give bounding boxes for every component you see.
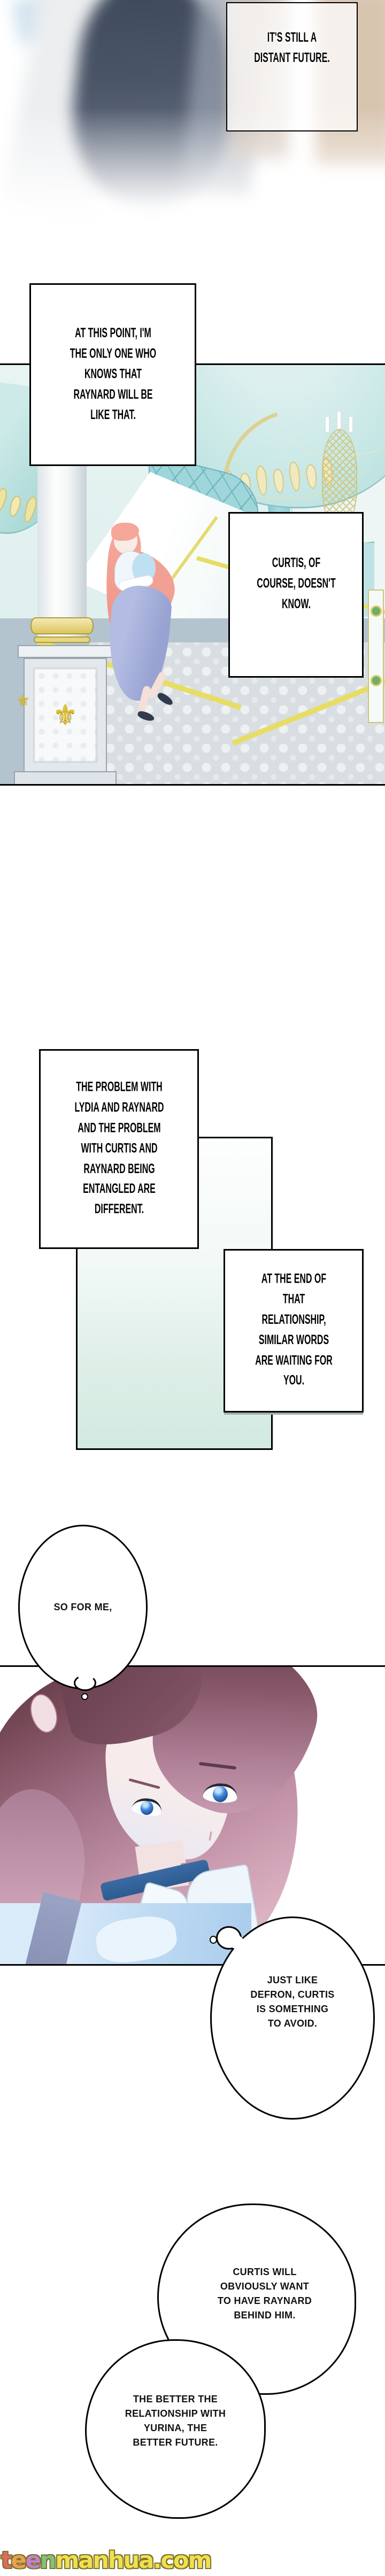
green-gem-medallion <box>371 606 382 617</box>
narration-box-at-the-end: AT THE END OF THAT RELATIONSHIP, SIMILAR… <box>224 1249 364 1413</box>
narration-text: THE PROBLEM WITH LYDIA AND RAYNARD AND T… <box>74 1078 164 1221</box>
watermark-domain: manhua.com <box>56 2547 211 2574</box>
narration-box-the-problem: THE PROBLEM WITH LYDIA AND RAYNARD AND T… <box>39 1049 199 1249</box>
bubble-text: SO FOR ME, <box>37 1600 128 1615</box>
narration-box-distant-future: IT'S STILL A DISTANT FUTURE. <box>226 2 358 131</box>
speech-bubble-the-better: THE BETTER THE RELATIONSHIP WITH YURINA,… <box>85 2339 266 2519</box>
green-gem-medallion <box>371 675 382 686</box>
watermark-teenmanhua: teenmanhua.com <box>1 2547 211 2574</box>
speech-bubble-so-for-me: SO FOR ME, <box>18 1525 148 1689</box>
webtoon-page: IT'S STILL A DISTANT FUTURE. <box>0 0 385 2576</box>
narration-box-curtis-doesnt-know: CURTIS, OF COURSE, DOESN'T KNOW. <box>228 512 364 678</box>
watermark-letter: e <box>26 2547 40 2574</box>
sconce-candle <box>337 411 341 429</box>
column-gold-ring-thin <box>34 637 90 643</box>
fleur-de-lis-icon: ⚜ <box>53 699 78 731</box>
narration-box-at-this-point: AT THIS POINT, I'M THE ONLY ONE WHO KNOW… <box>29 283 196 466</box>
sconce-candle <box>325 416 329 432</box>
bubble-tail-dot <box>81 1693 88 1700</box>
watermark-letter: e <box>11 2547 26 2574</box>
pedestal-panel: ⚜ <box>33 668 97 763</box>
pedestal-top-slab <box>18 645 113 658</box>
column-gold-ring <box>30 617 94 634</box>
bubble-dot <box>210 1936 217 1944</box>
iris-left <box>140 1800 155 1815</box>
iris-right <box>212 1786 228 1803</box>
pedestal-base-slab <box>14 771 117 786</box>
watermark-letter: n <box>40 2547 56 2574</box>
sconce-candle <box>349 416 353 432</box>
narration-text: IT'S STILL A DISTANT FUTURE. <box>249 28 335 69</box>
panel-face-closeup <box>0 1665 385 1966</box>
narration-text: CURTIS, OF COURSE, DOESN'T KNOW. <box>256 554 336 615</box>
narration-text: AT THIS POINT, I'M THE ONLY ONE WHO KNOW… <box>67 324 159 426</box>
bubble-text: THE BETTER THE RELATIONSHIP WITH YURINA,… <box>125 2392 226 2450</box>
watermark-letter: t <box>1 2547 11 2574</box>
bubble-text: CURTIS WILL OBVIOUSLY WANT TO HAVE RAYNA… <box>215 2265 314 2323</box>
fleur-de-lis-icon: ⚜ <box>15 691 32 711</box>
bubble-text: JUST LIKE DEFRON, CURTIS IS SOMETHING TO… <box>249 1973 337 2031</box>
bubble-tail-seam <box>78 1671 94 1681</box>
narration-text: AT THE END OF THAT RELATIONSHIP, SIMILAR… <box>250 1270 337 1392</box>
